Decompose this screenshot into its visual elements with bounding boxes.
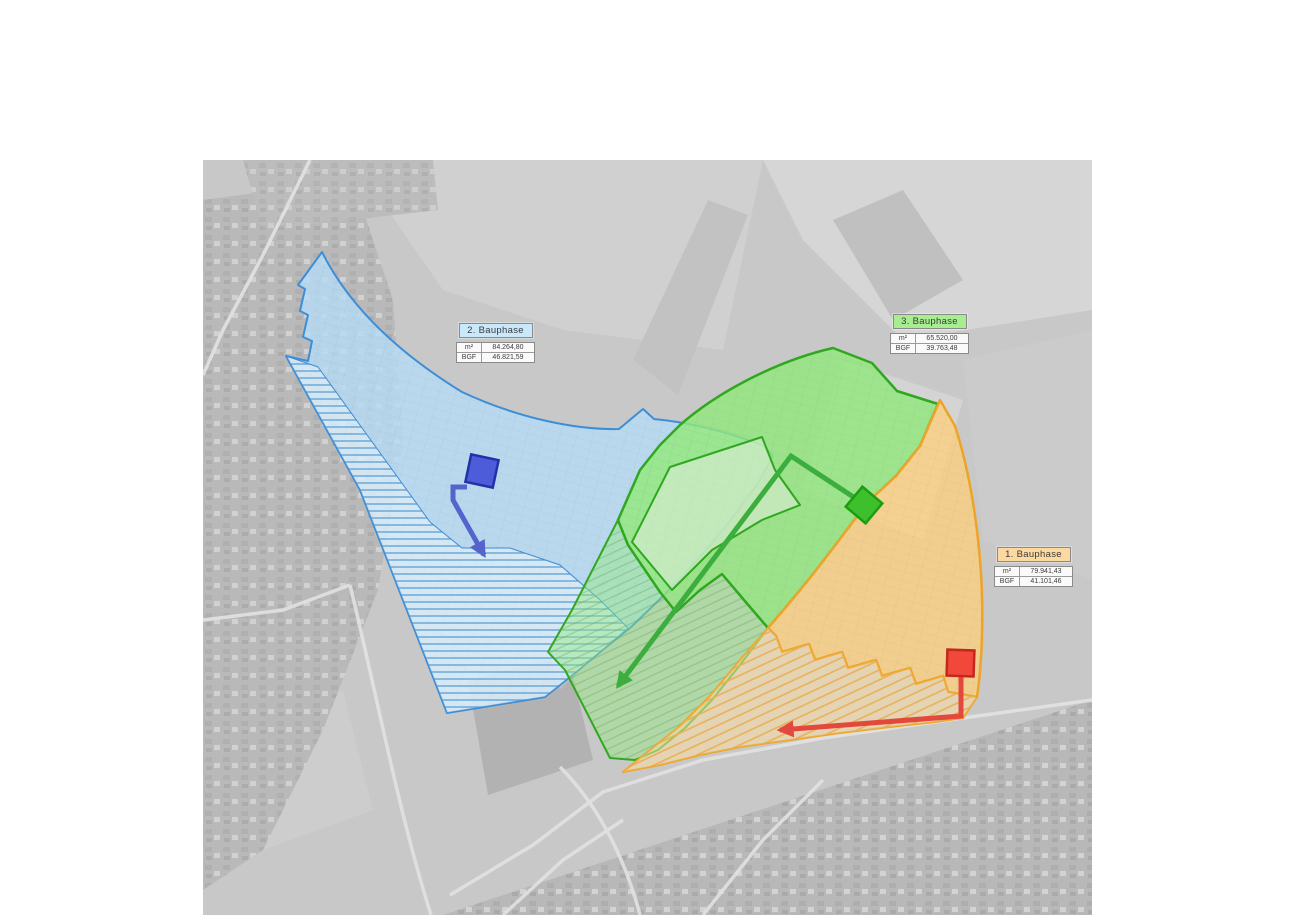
phase-2-label-title: 2. Bauphase	[459, 323, 533, 338]
phase-3-label-title: 3. Bauphase	[893, 314, 967, 329]
phase-2-area-value: 84.264,80	[482, 343, 534, 352]
phase-2-bgf-value: 46.821,59	[482, 353, 534, 362]
map-canvas	[203, 160, 1092, 915]
phase-1-label-block: 1. Bauphase m² 79.941,43 BGF 41.101,46	[994, 547, 1073, 587]
aerial-map: 2. Bauphase m² 84.264,80 BGF 46.821,59 3…	[203, 160, 1092, 915]
phase-2-bgf-label: BGF	[457, 353, 481, 362]
phase-1-label-title: 1. Bauphase	[997, 547, 1071, 562]
phase-2-marker	[465, 454, 498, 487]
phase-3-bgf-label: BGF	[891, 344, 915, 353]
phase-3-area-label: m²	[891, 334, 915, 343]
phase-3-label-table: m² 65.520,00 BGF 39.763,48	[890, 333, 969, 354]
phase-1-bgf-value: 41.101,46	[1020, 577, 1072, 586]
phase-1-bgf-label: BGF	[995, 577, 1019, 586]
page: 2. Bauphase m² 84.264,80 BGF 46.821,59 3…	[0, 0, 1300, 915]
phase-3-label-block: 3. Bauphase m² 65.520,00 BGF 39.763,48	[890, 314, 969, 354]
phase-3-bgf-value: 39.763,48	[916, 344, 968, 353]
phase-1-marker	[947, 650, 975, 677]
phase-3-area-value: 65.520,00	[916, 334, 968, 343]
phase-2-area-label: m²	[457, 343, 481, 352]
phase-1-area-value: 79.941,43	[1020, 567, 1072, 576]
phase-2-label-table: m² 84.264,80 BGF 46.821,59	[456, 342, 535, 363]
phase-2-label-block: 2. Bauphase m² 84.264,80 BGF 46.821,59	[456, 323, 535, 363]
phase-1-label-table: m² 79.941,43 BGF 41.101,46	[994, 566, 1073, 587]
phase-1-area-label: m²	[995, 567, 1019, 576]
